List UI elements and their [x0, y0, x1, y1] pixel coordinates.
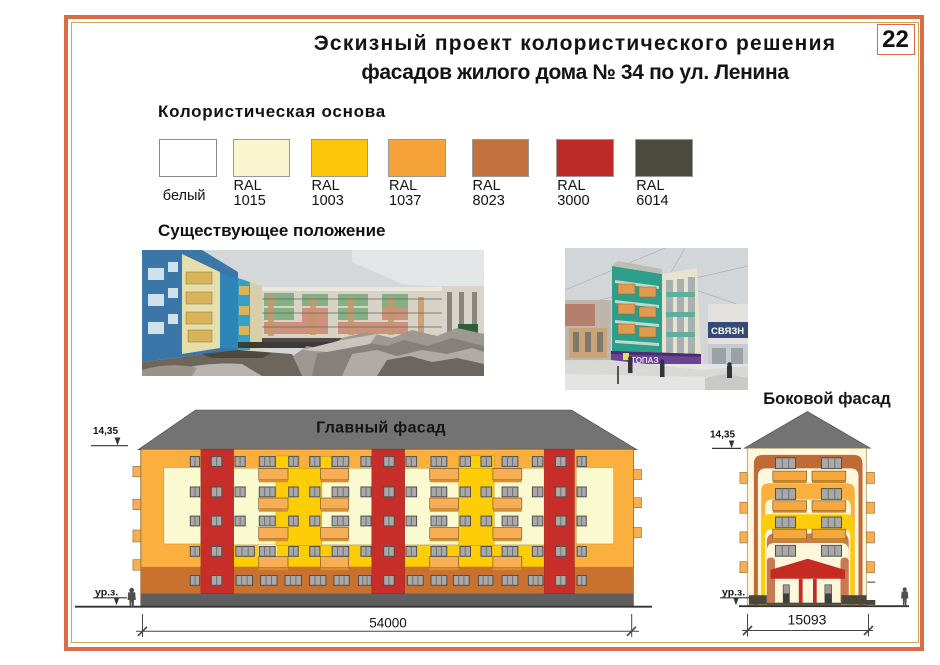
svg-text:СВЯЗН: СВЯЗН — [711, 326, 744, 337]
svg-text:Главный фасад: Главный фасад — [316, 420, 446, 437]
svg-text:ур.з.: ур.з. — [95, 587, 118, 599]
svg-text:Боковой фасад: Боковой фасад — [763, 390, 891, 408]
svg-text:ур.з.: ур.з. — [722, 587, 745, 599]
svg-text:54000: 54000 — [369, 616, 407, 631]
svg-text:14,35: 14,35 — [710, 430, 735, 441]
svg-text:15093: 15093 — [788, 612, 827, 628]
svg-text:14,35: 14,35 — [93, 426, 118, 437]
